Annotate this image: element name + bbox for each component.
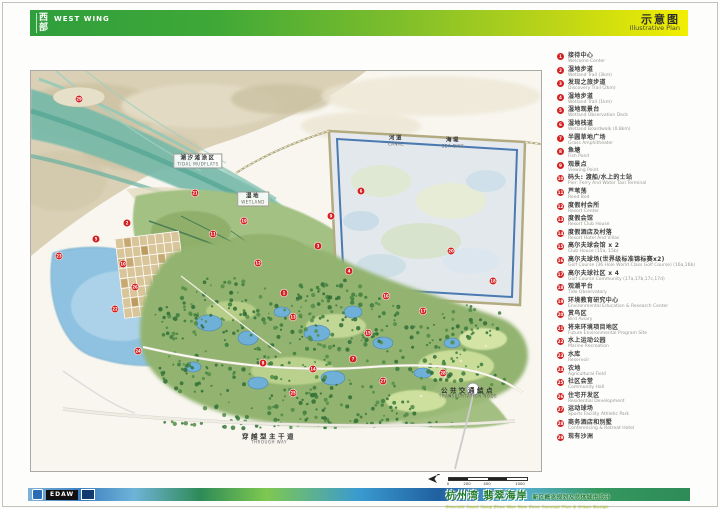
legend-item: 15 高尔夫球会馆 x 2 Club House (15a, 15b) <box>557 242 717 254</box>
legend-number-badge: 20 <box>557 311 564 318</box>
map-marker-9: 9 <box>328 213 335 220</box>
header-bar: 西部 WEST WING 示意图 Illustrative Plan <box>30 10 688 36</box>
legend-label-en: Golf Course Community (17a,17b,17c,17d) <box>568 277 665 282</box>
map-marker-20: 20 <box>448 248 455 255</box>
legend-item: 16 高尔夫球场(世界级标准锦标赛x2) Golf Course (36 Hol… <box>557 256 717 268</box>
legend-label-cn: 农地 <box>568 365 606 372</box>
map-marker-3: 3 <box>315 243 322 250</box>
legend-number-badge: 16 <box>557 257 564 264</box>
legend-label-en: Pier: Ferry And Water Taxi Terminal <box>568 181 646 186</box>
map-marker-16: 16 <box>383 293 390 300</box>
legend-item: 24 农地 Agricultural Field <box>557 365 717 377</box>
legend-label-en: Community Hall <box>568 385 604 390</box>
legend-number-badge: 3 <box>557 80 564 87</box>
legend-label-en: Grass Amphitheater <box>568 141 613 146</box>
legend-number-badge: 6 <box>557 121 564 128</box>
legend-label-en: Agricultural Field <box>568 372 606 377</box>
plan-title: 示意图 Illustrative Plan <box>630 14 680 32</box>
project-title-en: Emerald Coast Hang Zhou Wan New Zone Con… <box>446 504 611 509</box>
legend-item: 6 湿地栈道 Wetland Boardwalk (0.8km) <box>557 120 717 132</box>
legend-number-badge: 8 <box>557 148 564 155</box>
map-label: 海堤SEA DIKE <box>442 138 464 149</box>
map-marker-25: 25 <box>290 390 297 397</box>
legend-number-badge: 5 <box>557 107 564 114</box>
map-marker-19: 19 <box>241 218 248 225</box>
map-marker-18: 18 <box>490 278 497 285</box>
map-marker-6: 6 <box>358 188 365 195</box>
partner-logo-2-icon <box>81 489 95 500</box>
legend-item: 28 商务酒店和别墅 Conferencing & Retreat Hotel <box>557 419 717 431</box>
legend-label-cn: 湿地步道 <box>568 93 612 100</box>
legend-number-badge: 19 <box>557 298 564 305</box>
map-marker-7: 7 <box>350 356 357 363</box>
legend-label-cn: 芦苇荡 <box>568 188 589 195</box>
region-label-cn: 西部 <box>36 13 50 33</box>
legend-number-badge: 11 <box>557 189 564 196</box>
legend-number-badge: 7 <box>557 135 564 142</box>
legend-label-en: Wetland Trail (3km) <box>568 73 612 78</box>
map-marker-26: 26 <box>132 284 139 291</box>
legend-number-badge: 23 <box>557 352 564 359</box>
map-marker-8: 8 <box>260 360 267 367</box>
legend-label-en: Reservoir <box>568 358 589 363</box>
legend-label-cn: 湿地步道 <box>568 66 612 73</box>
legend-number-badge: 9 <box>557 162 564 169</box>
legend-label-en: Fish Pond <box>568 154 589 159</box>
legend-item: 13 度假会馆 Resort Club House <box>557 215 717 227</box>
legend-item: 29 现有沙洲 <box>557 433 717 441</box>
project-subtitle-cn: 新区概念规划及总体城市设计 <box>533 495 611 501</box>
legend-item: 19 环境教育研究中心 Environmental Education & Re… <box>557 297 717 309</box>
map-marker-24: 24 <box>135 348 142 355</box>
legend-number-badge: 1 <box>557 53 564 60</box>
map-marker-5: 5 <box>93 236 100 243</box>
legend-label-en: Resort Club House <box>568 222 609 227</box>
legend-number-badge: 4 <box>557 94 564 101</box>
map-label: 潮汐滩涂区TIDAL MUDFLATS <box>173 154 222 169</box>
legend-label-cn: 湿地栈道 <box>568 120 630 127</box>
legend-item: 27 运动球场 Sports Facility Athletic Park <box>557 405 717 417</box>
map-label: 公共交通结点TRANSPORTATION NODE <box>439 388 497 399</box>
legend-item: 12 度假村会所 Resort Center <box>557 202 717 214</box>
legend-label-en: Discovery Trail (2km) <box>568 86 616 91</box>
map-marker-12: 12 <box>255 260 262 267</box>
map-marker-11: 11 <box>210 231 217 238</box>
legend-item: 7 半圆草地广场 Grass Amphitheater <box>557 134 717 146</box>
legend-number-badge: 14 <box>557 230 564 237</box>
legend-label-cn: 半圆草地广场 <box>568 134 613 141</box>
plan-title-en: Illustrative Plan <box>630 25 680 32</box>
legend-number-badge: 13 <box>557 216 564 223</box>
legend-label-cn: 度假酒店及村落 <box>568 229 619 236</box>
legend-label-cn: 观景点 <box>568 161 598 168</box>
legend-label-en: Environmental Education & Research Cente… <box>568 304 668 309</box>
legend-number-badge: 2 <box>557 67 564 74</box>
legend-label-en: Tide Observatory <box>568 290 607 295</box>
legend-item: 17 高尔夫球社区 x 4 Golf Course Community (17a… <box>557 270 717 282</box>
legend-item: 10 码头: 渡船/水上的士站 Pier: Ferry And Water Ta… <box>557 174 717 186</box>
legend-item: 8 鱼塘 Fish Pond <box>557 147 717 159</box>
map-marker-15: 15 <box>365 330 372 337</box>
map-label: 湿地WETLAND <box>237 192 269 207</box>
legend-item: 5 湿地观景台 Wetland Observation Deck <box>557 106 717 118</box>
legend-number-badge: 15 <box>557 243 564 250</box>
legend-label-cn: 水库 <box>568 351 589 358</box>
legend-item: 2 湿地步道 Wetland Trail (3km) <box>557 66 717 78</box>
region-label: 西部 WEST WING <box>36 13 110 33</box>
legend-label-en: Wetland Observation Deck <box>568 113 628 118</box>
legend-label-en: Conferencing & Retreat Hotel <box>568 426 634 431</box>
legend-number-badge: 24 <box>557 366 564 373</box>
legend-label-cn: 高尔夫球场(世界级标准锦标赛x2) <box>568 256 695 263</box>
masterplan-map: 潮汐滩涂区TIDAL MUDFLATS湿地WETLAND河道CANAL海堤SEA… <box>30 70 542 472</box>
map-marker-4: 4 <box>346 268 353 275</box>
legend-number-badge: 26 <box>557 393 564 400</box>
legend-number-badge: 17 <box>557 271 564 278</box>
legend-label-cn: 住宅开发区 <box>568 392 625 399</box>
legend-item: 21 将来环境项目地区 Future Environmental Program… <box>557 324 717 336</box>
legend-item: 25 社区会堂 Community Hall <box>557 378 717 390</box>
legend-number-badge: 21 <box>557 325 564 332</box>
legend-item: 20 赏鸟区 Bird Aviary <box>557 310 717 322</box>
north-arrow-icon <box>428 474 440 484</box>
legend-number-badge: 28 <box>557 420 564 427</box>
legend-number-badge: 29 <box>557 434 564 441</box>
plan-sheet: 西部 WEST WING 示意图 Illustrative Plan <box>0 0 720 509</box>
legend-label-en: Resort Hotel And Villas <box>568 236 619 241</box>
map-marker-10: 10 <box>120 261 127 268</box>
project-title: 杭州湾 翡翠海岸 新区概念规划及总体城市设计 Emerald Coast Han… <box>446 484 611 509</box>
edaw-logo: EDAW <box>46 490 78 500</box>
map-label: 河道CANAL <box>388 136 404 147</box>
legend-label-cn: 环境教育研究中心 <box>568 297 668 304</box>
legend-item: 1 接待中心 Welcome Center <box>557 52 717 64</box>
legend-label-en: Golf Course (36 Hole World Class Golf Co… <box>568 263 695 268</box>
legend-label-en: Reed Bed <box>568 195 589 200</box>
project-title-cn: 杭州湾 翡翠海岸 <box>446 491 527 502</box>
legend-item: 11 芦苇荡 Reed Bed <box>557 188 717 200</box>
legend-label-cn: 接待中心 <box>568 52 605 59</box>
legend-item: 9 观景点 Viewing Point <box>557 161 717 173</box>
map-marker-29: 29 <box>76 96 83 103</box>
legend-label-en: Wetland Trail (1km) <box>568 100 612 105</box>
legend: 1 接待中心 Welcome Center 2 湿地步道 Wetland Tra… <box>557 52 717 442</box>
legend-item: 18 观潮平台 Tide Observatory <box>557 283 717 295</box>
legend-label-cn: 商务酒店和别墅 <box>568 419 634 426</box>
legend-label-cn: 度假村会所 <box>568 202 600 209</box>
map-marker-14: 14 <box>310 366 317 373</box>
legend-number-badge: 22 <box>557 338 564 345</box>
map-marker-17: 17 <box>420 308 427 315</box>
legend-label-en: Sports Facility Athletic Park <box>568 412 629 417</box>
map-marker-1: 1 <box>281 290 288 297</box>
map-marker-2: 2 <box>124 220 131 227</box>
legend-item: 26 住宅开发区 Residential Development <box>557 392 717 404</box>
legend-item: 4 湿地步道 Wetland Trail (1km) <box>557 93 717 105</box>
map-marker-21: 21 <box>192 190 199 197</box>
footer-logos: EDAW <box>32 489 95 500</box>
legend-number-badge: 12 <box>557 203 564 210</box>
footer-bar: EDAW 杭州湾 翡翠海岸 新区概念规划及总体城市设计 Emerald Coas… <box>28 488 690 501</box>
partner-logo-icon <box>32 489 43 500</box>
map-label: 穿越型主干道THROUGH WAY <box>242 434 296 445</box>
map-marker-13: 13 <box>290 314 297 321</box>
legend-label-en: Marine Recreation <box>568 344 609 349</box>
legend-label-en: Wetland Boardwalk (0.8km) <box>568 127 630 132</box>
legend-item: 22 水上运动公园 Marine Recreation <box>557 337 717 349</box>
map-overlay: 潮汐滩涂区TIDAL MUDFLATS湿地WETLAND河道CANAL海堤SEA… <box>31 71 541 471</box>
legend-label-en: Club House (15a, 15b) <box>568 249 619 254</box>
map-marker-27: 27 <box>380 378 387 385</box>
map-marker-28: 28 <box>440 370 447 377</box>
legend-label-en: Bird Aviary <box>568 317 592 322</box>
legend-label-en: Viewing Point <box>568 168 598 173</box>
legend-label-cn: 现有沙洲 <box>568 433 593 440</box>
legend-label-cn: 将来环境项目地区 <box>568 324 647 331</box>
legend-label-en: Welcome Center <box>568 59 605 64</box>
legend-item: 3 发现之旅步道 Discovery Trail (2km) <box>557 79 717 91</box>
legend-label-en: Resort Center <box>568 209 600 214</box>
legend-label-cn: 高尔夫球社区 x 4 <box>568 270 665 277</box>
legend-number-badge: 25 <box>557 379 564 386</box>
map-marker-22: 22 <box>112 306 119 313</box>
legend-item: 23 水库 Reservoir <box>557 351 717 363</box>
legend-item: 14 度假酒店及村落 Resort Hotel And Villas <box>557 229 717 241</box>
legend-number-badge: 27 <box>557 406 564 413</box>
legend-label-en: Residential Development <box>568 399 625 404</box>
map-marker-23: 23 <box>56 253 63 260</box>
region-label-en: WEST WING <box>54 15 110 23</box>
legend-number-badge: 18 <box>557 284 564 291</box>
legend-label-en: Future Environmental Program Site <box>568 331 647 336</box>
legend-number-badge: 10 <box>557 175 564 182</box>
